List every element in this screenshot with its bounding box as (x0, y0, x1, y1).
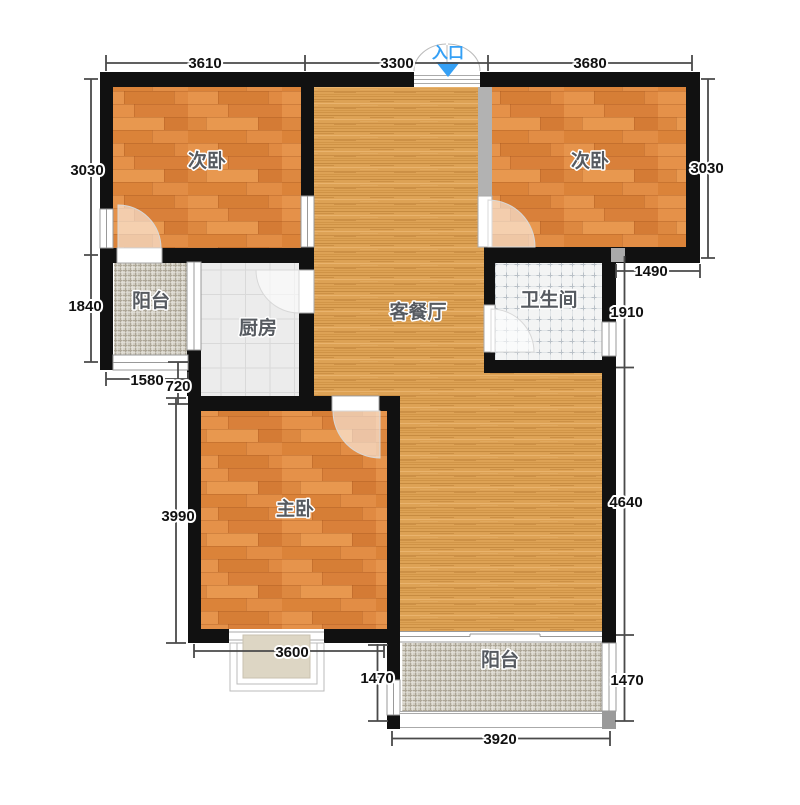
svg-text:1580: 1580 (130, 372, 163, 389)
svg-text:3030: 3030 (690, 160, 723, 177)
svg-text:3680: 3680 (573, 55, 606, 72)
svg-text:3600: 3600 (275, 644, 308, 661)
svg-text:阳台: 阳台 (481, 648, 519, 671)
svg-text:厨房: 厨房 (239, 316, 277, 339)
svg-text:阳台: 阳台 (132, 289, 170, 312)
svg-text:次卧: 次卧 (571, 149, 609, 172)
svg-text:3300: 3300 (380, 55, 413, 72)
svg-text:1490: 1490 (634, 263, 667, 280)
svg-text:1840: 1840 (68, 298, 101, 315)
svg-text:1910: 1910 (610, 304, 643, 321)
svg-text:720: 720 (165, 378, 190, 395)
svg-text:1470: 1470 (610, 672, 643, 689)
svg-text:3610: 3610 (188, 55, 221, 72)
svg-text:3030: 3030 (70, 162, 103, 179)
svg-text:4640: 4640 (609, 494, 642, 511)
svg-text:主卧: 主卧 (276, 498, 314, 520)
svg-text:3990: 3990 (161, 508, 194, 525)
svg-text:入口: 入口 (432, 44, 464, 62)
svg-text:次卧: 次卧 (188, 149, 226, 172)
svg-text:1470: 1470 (360, 670, 393, 687)
svg-text:卫生间: 卫生间 (520, 288, 577, 311)
svg-text:客餐厅: 客餐厅 (389, 300, 446, 323)
svg-text:3920: 3920 (483, 731, 516, 748)
